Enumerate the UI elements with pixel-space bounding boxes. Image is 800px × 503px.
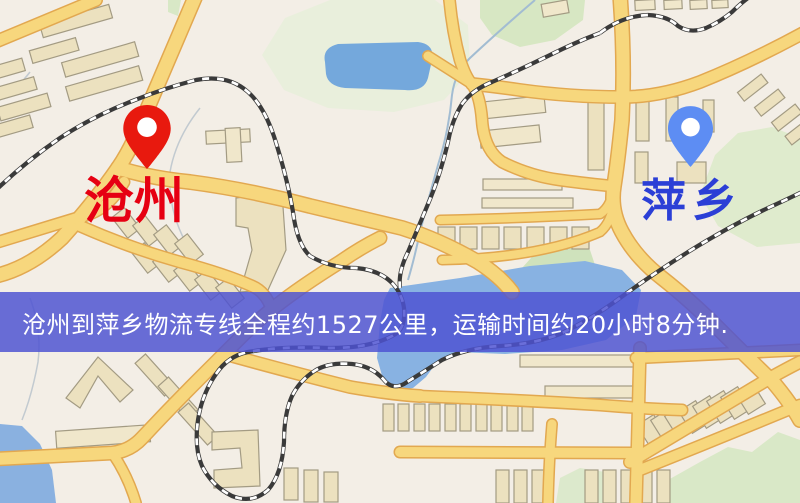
destination-pin-icon[interactable]: [667, 105, 714, 168]
origin-city-label: 沧州: [84, 176, 184, 226]
destination-city-label: 萍乡: [641, 178, 743, 223]
lake: [325, 42, 433, 90]
map-screenshot: 沧州 萍乡 沧州到萍乡物流专线全程约1527公里，运输时间约20小时8分钟.: [0, 0, 800, 503]
origin-pin-icon[interactable]: [122, 104, 172, 170]
map-canvas[interactable]: [0, 0, 800, 503]
route-info-text: 沧州到萍乡物流专线全程约1527公里，运输时间约20小时8分钟.: [22, 305, 729, 340]
route-info-banner: 沧州到萍乡物流专线全程约1527公里，运输时间约20小时8分钟.: [0, 292, 800, 352]
